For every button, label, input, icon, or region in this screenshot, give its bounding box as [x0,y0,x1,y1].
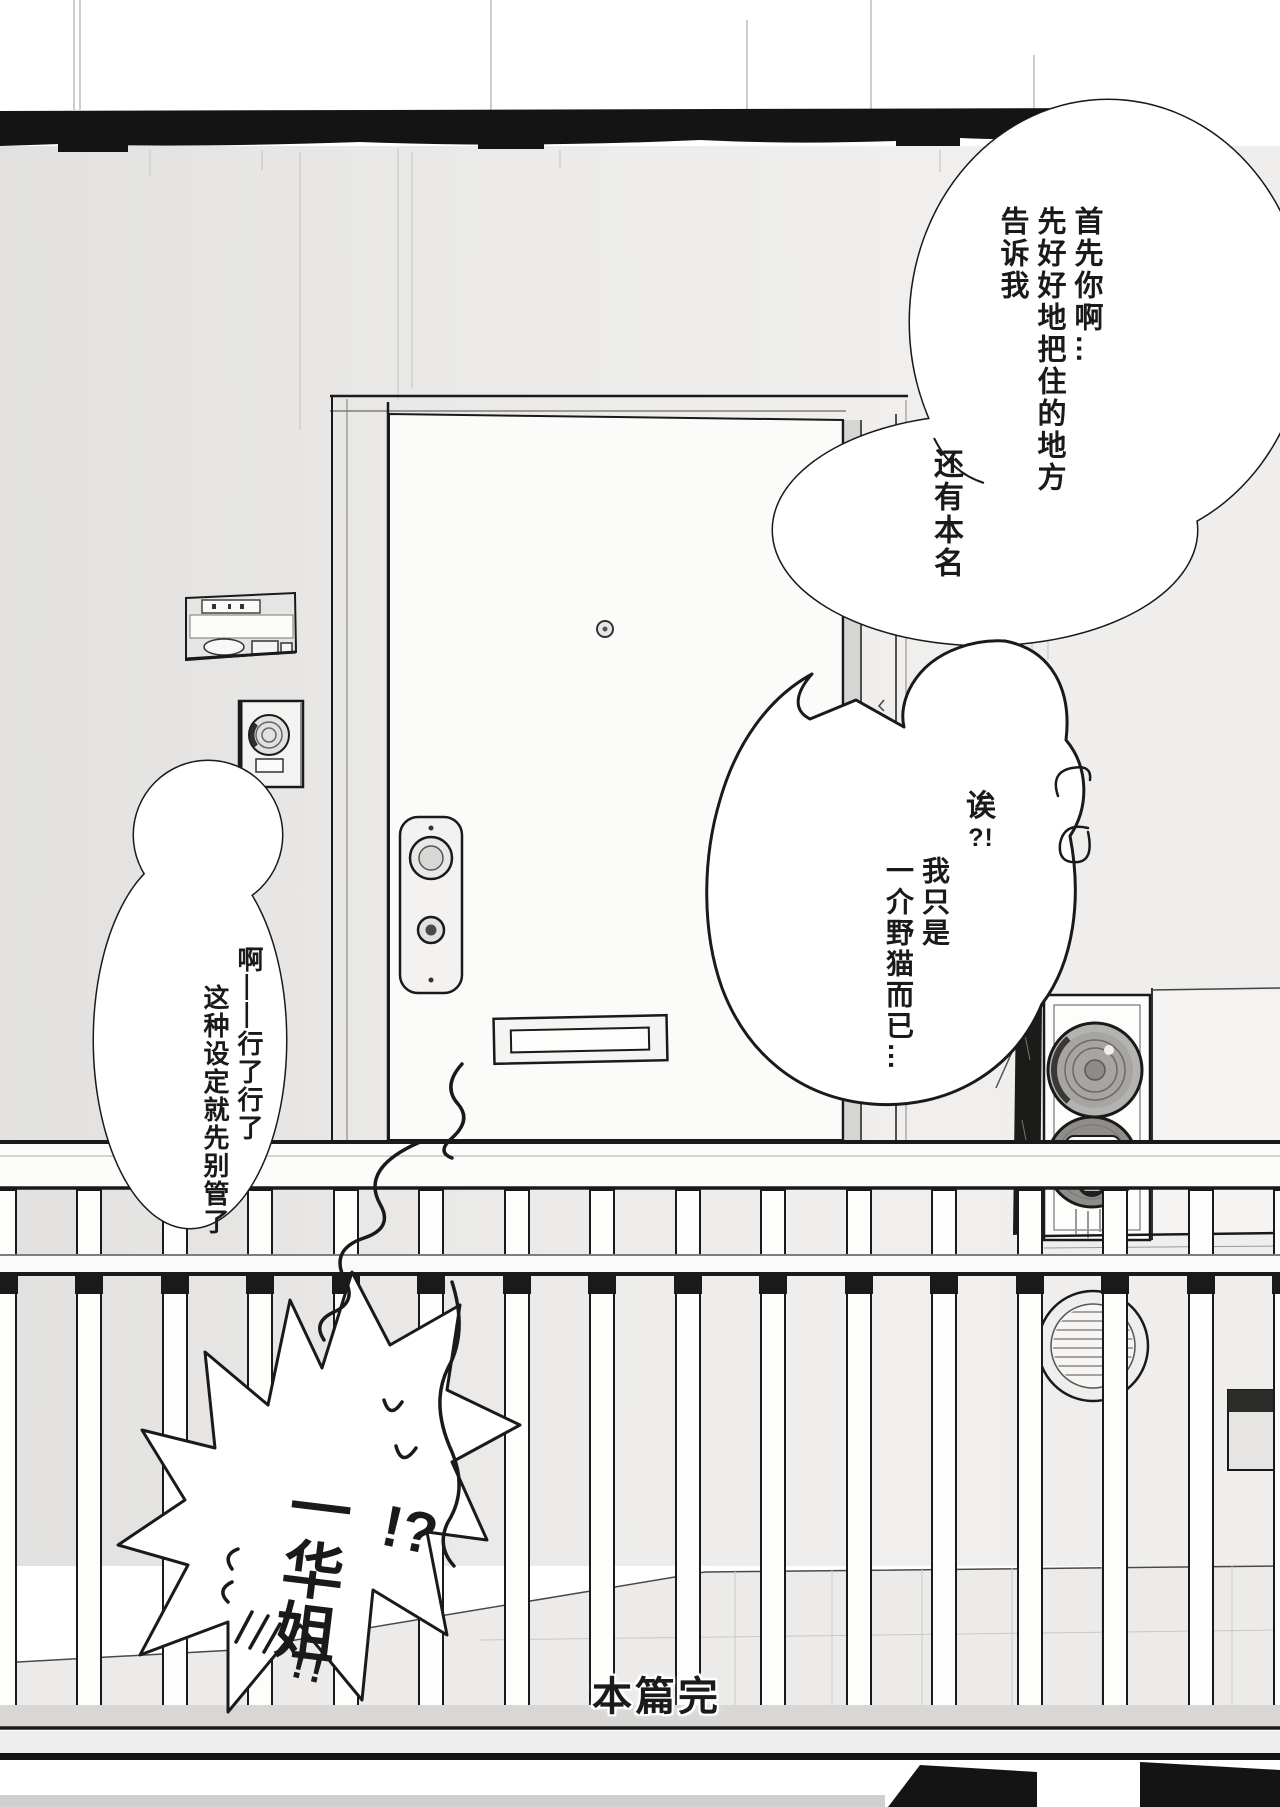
door-lock [418,917,444,943]
sill-line-2 [1044,1246,1280,1248]
speech-line: 先好好地把住的地方 [1030,206,1067,494]
end-caption: 本篇完 [592,1664,721,1722]
speech-line: 还有本名 [926,448,964,580]
speech-line: ?! [948,824,1014,852]
manga-page: 首先你啊… 先好好地把住的地方 告诉我 还有本名 诶 ?! 我只是 一介野猫而已… [0,0,1280,1807]
speech-text-middle: 我只是 一介野猫而已… [880,856,952,1073]
room-number-plate [202,600,260,613]
speech-line: 这种设定就先别管了 [198,946,232,1236]
speech-line: 首先你啊… [1067,206,1104,494]
peephole [597,621,613,637]
ceiling-seam-lines [74,0,1034,110]
speech-line: 告诉我 [993,206,1030,494]
speech-line: 一介野猫而已… [880,856,916,1073]
vent-right [1038,1291,1148,1401]
speech-line: 啊——行了行了 [232,946,266,1236]
right-low-box [1228,1390,1280,1470]
speaker-grille [1048,1023,1142,1117]
speech-text-attach: 还有本名 [926,448,964,580]
doorbell-panel [1044,995,1150,1240]
ceiling-shadow-band [0,108,1106,176]
speech-line: 诶 [948,790,1014,824]
speech-text-top-right: 首先你啊… 先好好地把住的地方 告诉我 [993,206,1104,494]
door-handle [400,817,462,993]
meter-box [186,593,296,660]
speech-text-left: 啊——行了行了 这种设定就先别管了 [198,946,266,1236]
speech-text-exclaim: 诶 ?! [948,790,1014,852]
speech-line: 我只是 [916,856,952,1073]
railing-crossbar [0,1254,1280,1294]
mail-slot [494,1015,668,1064]
